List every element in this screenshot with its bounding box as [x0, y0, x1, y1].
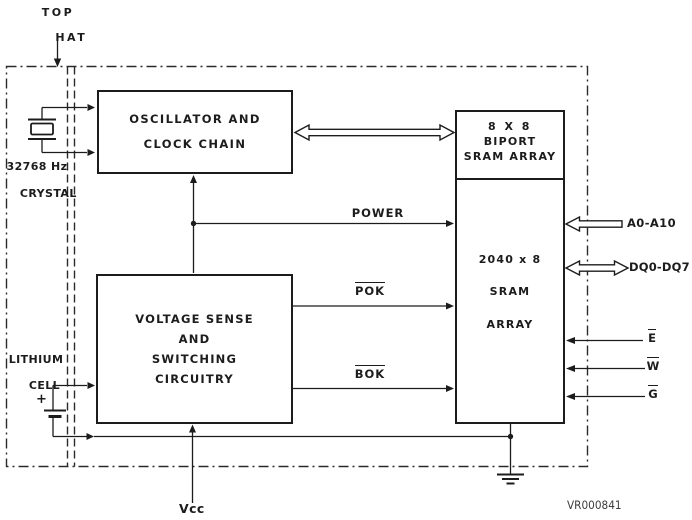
top-hat-label-line2: HAT: [55, 31, 87, 44]
biport-label-line3: SRAM ARRAY: [464, 149, 557, 164]
voltage-label-line4: CIRCUITRY: [155, 369, 234, 389]
ground-junction-dot: [508, 434, 513, 439]
chip-enable-overline-text: E: [648, 329, 656, 345]
power-feed-line: [190, 175, 197, 273]
write-enable-label: W: [644, 357, 662, 373]
power-wire: [194, 220, 455, 227]
chip-enable-wire: [566, 337, 643, 344]
address-bus-arrow: [566, 217, 622, 231]
crystal-freq-label: 32768 Hz: [7, 160, 68, 173]
top-hat-label: TOP HAT: [30, 7, 86, 45]
lithium-label-line1: LITHIUM: [9, 353, 64, 366]
crystal-label: 32768 Hz CRYSTAL: [3, 160, 71, 201]
output-enable-wire: [566, 393, 645, 400]
top-hat-label-line1: TOP: [42, 6, 74, 19]
sram-section-divider: [457, 178, 563, 180]
bok-overline-text: BOK: [355, 365, 385, 381]
biport-label-line2: BIPORT: [464, 134, 557, 149]
sram-label-line3: ARRAY: [457, 318, 563, 331]
data-bus-arrow: [566, 261, 628, 275]
bok-wire: [293, 385, 454, 392]
oscillator-sram-bus-arrow: [295, 125, 454, 140]
crystal-symbol-icon: [28, 104, 95, 156]
crystal-name-label: CRYSTAL: [20, 187, 77, 200]
vcc-wire: [189, 425, 196, 504]
biport-label-line1: 8 X 8: [464, 119, 557, 134]
wires-layer: [0, 0, 692, 520]
power-junction-dot: [191, 221, 196, 226]
voltage-label-line3: SWITCHING: [152, 349, 237, 369]
pok-wire: [293, 303, 454, 310]
ground-symbol-icon: [497, 424, 524, 484]
sram-array-block: 8 X 8 BIPORT SRAM ARRAY 2040 x 8 SRAM AR…: [455, 110, 565, 424]
sram-label-line2: SRAM: [457, 285, 563, 298]
pok-overline-text: POK: [355, 282, 385, 298]
sram-label-line1: 2040 x 8: [457, 253, 563, 266]
oscillator-label-line2: CLOCK CHAIN: [144, 132, 247, 157]
oscillator-label-line1: OSCILLATOR AND: [129, 107, 261, 132]
voltage-sense-switching-block: VOLTAGE SENSE AND SWITCHING CIRCUITRY: [96, 274, 293, 424]
chip-enable-label: E: [643, 329, 661, 345]
battery-plus-sign: +: [36, 393, 47, 406]
vcc-label: Vcc: [179, 502, 205, 515]
bok-signal-label: BOK: [332, 365, 408, 381]
voltage-label-line1: VOLTAGE SENSE: [135, 309, 254, 329]
output-enable-overline-text: G: [648, 385, 657, 401]
write-enable-overline-text: W: [647, 357, 660, 373]
data-bus-label: DQ0-DQ7: [629, 261, 690, 274]
biport-sram-section: 8 X 8 BIPORT SRAM ARRAY: [464, 112, 557, 164]
pok-signal-label: POK: [332, 282, 408, 298]
block-diagram-canvas: OSCILLATOR AND CLOCK CHAIN VOLTAGE SENSE…: [0, 0, 692, 520]
lithium-cell-label: LITHIUM CELL: [6, 353, 66, 392]
output-enable-label: G: [644, 385, 662, 401]
address-bus-label: A0-A10: [627, 217, 676, 230]
figure-id-label: VR000841: [567, 499, 622, 513]
voltage-label-line2: AND: [179, 329, 211, 349]
lithium-label-line2: CELL: [29, 379, 60, 392]
write-enable-wire: [566, 365, 645, 372]
oscillator-clock-chain-block: OSCILLATOR AND CLOCK CHAIN: [97, 90, 293, 174]
power-signal-label: POWER: [330, 207, 426, 220]
